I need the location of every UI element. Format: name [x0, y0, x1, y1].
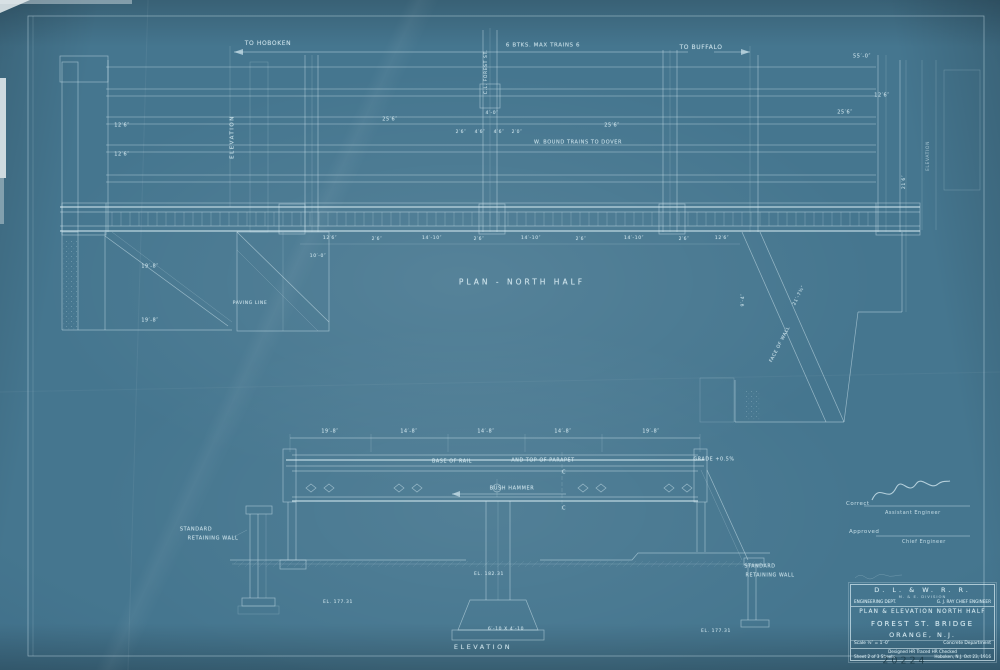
left-elevation-vertical-label: ELEVATION	[230, 115, 236, 159]
dimension-label: 10′-0″	[310, 255, 327, 260]
street-centerline-label: C.L. Forest St.	[485, 50, 490, 95]
max-trains-label: 6 Btks. Max Trains 6	[506, 43, 580, 49]
dimension-label: 12′6″	[114, 124, 130, 129]
bush-hammer-label: Bush Hammer	[490, 487, 535, 492]
dimension-label: 4′6″	[494, 131, 505, 136]
blueprint-sheet: To Hoboken6 Btks. Max Trains 6To Buffalo…	[0, 0, 1000, 670]
to-hoboken-label: To Hoboken	[245, 41, 291, 47]
plan-title: PLAN - NORTH HALF	[459, 278, 585, 286]
dimension-label: Standard	[180, 528, 212, 533]
dimension-label: 25′6″	[382, 118, 398, 123]
dimension-label: 21′6″	[903, 175, 908, 189]
dimension-label: 2′0″	[512, 131, 523, 136]
dimension-label: 19′-8″	[141, 266, 158, 271]
dimension-label: 14′-8″	[400, 431, 417, 436]
to-buffalo-label: To Buffalo	[679, 45, 722, 51]
dimension-label: 55′-0″	[853, 55, 871, 60]
correct-label: Correct	[846, 501, 870, 507]
dimension-label: 12′6″	[323, 237, 337, 242]
dimension-label: El. 177.31	[323, 601, 353, 606]
dimension-label: 2′6″	[679, 238, 690, 243]
dimension-label: 12′6″	[114, 153, 130, 158]
dimension-label: 14′-10″	[624, 237, 644, 242]
dimension-label: 25′6″	[837, 111, 853, 116]
dimension-label: El. 177.31	[701, 630, 731, 635]
elevation-linework	[228, 434, 770, 640]
bound-trains-label: W. Bound Trains To Dover	[534, 141, 622, 146]
base-of-rail-label: Base of Rail	[432, 461, 472, 466]
dimension-label: C	[562, 471, 566, 476]
chief-engineer-label: Chief Engineer	[902, 539, 946, 545]
dimension-label: 25′6″	[604, 124, 620, 129]
grade-label: Grade +0.5%	[693, 459, 734, 464]
dimension-label: 6′-10 x 4′-10	[488, 628, 524, 633]
dimension-label: 2′6″	[456, 131, 467, 136]
pencil-drawing-number: 20224	[882, 655, 927, 666]
dimension-label: 14′-8″	[554, 431, 571, 436]
dimension-label: 2′6″	[372, 238, 383, 243]
blueprint-linework	[0, 0, 1000, 670]
dimension-label: 2′6″	[576, 238, 587, 243]
place-date: Hoboken, N.J. Oct 23, 1916	[934, 655, 991, 659]
correct-signature	[872, 481, 950, 500]
dimension-label: 19′-8″	[642, 431, 659, 436]
dimension-label: C	[562, 507, 566, 512]
assistant-engineer-label: Assistant Engineer	[885, 510, 941, 516]
dimension-label: 14′-10″	[422, 237, 442, 242]
bridge-name: FOREST ST. BRIDGE	[851, 621, 994, 628]
top-of-parapet-label: and Top of Parapet	[511, 460, 574, 465]
dimension-label: Retaining Wall	[746, 575, 795, 580]
dimension-label: 19′-8″	[141, 320, 158, 325]
right-elevation-vertical-label: ELEVATION	[927, 141, 932, 171]
railroad-name: D. L. & W. R. R.	[851, 587, 994, 594]
dimension-label: 9′-4″	[742, 293, 747, 306]
dimension-label: El. 182.31	[474, 573, 504, 578]
faint-note-scrawl	[855, 574, 902, 579]
elevation-title: ELEVATION	[454, 644, 512, 651]
dimension-label: Standard	[744, 566, 775, 571]
dimension-label: 4′6″	[475, 131, 486, 136]
dimension-label: 4′-0″	[485, 112, 498, 117]
dimension-label: Retaining Wall	[188, 537, 239, 542]
dimension-label: 14′-10″	[521, 237, 541, 242]
scale-note: Scale ½″ = 1′-0″	[854, 642, 889, 646]
chief-engineer-name: G. J. RAY CHIEF ENGINEER	[937, 600, 991, 604]
title-block: D. L. & W. R. R. M. & E. DIVISION ENGINE…	[850, 584, 995, 661]
plan-linework	[60, 28, 980, 422]
dimension-label: 2′6″	[474, 238, 485, 243]
dimension-label: Paving Line	[233, 302, 268, 307]
dimension-label: 14′-8″	[477, 431, 494, 436]
dimension-label: 12′6″	[874, 94, 890, 99]
dimension-label: 12′6″	[715, 237, 729, 242]
department-name: Concrete Department	[943, 642, 991, 646]
engineering-dept: ENGINEERING DEPT.	[854, 600, 896, 604]
drawing-title: PLAN & ELEVATION NORTH HALF	[851, 610, 994, 616]
dimension-label: 19′-8″	[321, 431, 338, 436]
bridge-location: ORANGE, N.J.	[851, 632, 994, 639]
approved-label: Approved	[849, 529, 879, 535]
